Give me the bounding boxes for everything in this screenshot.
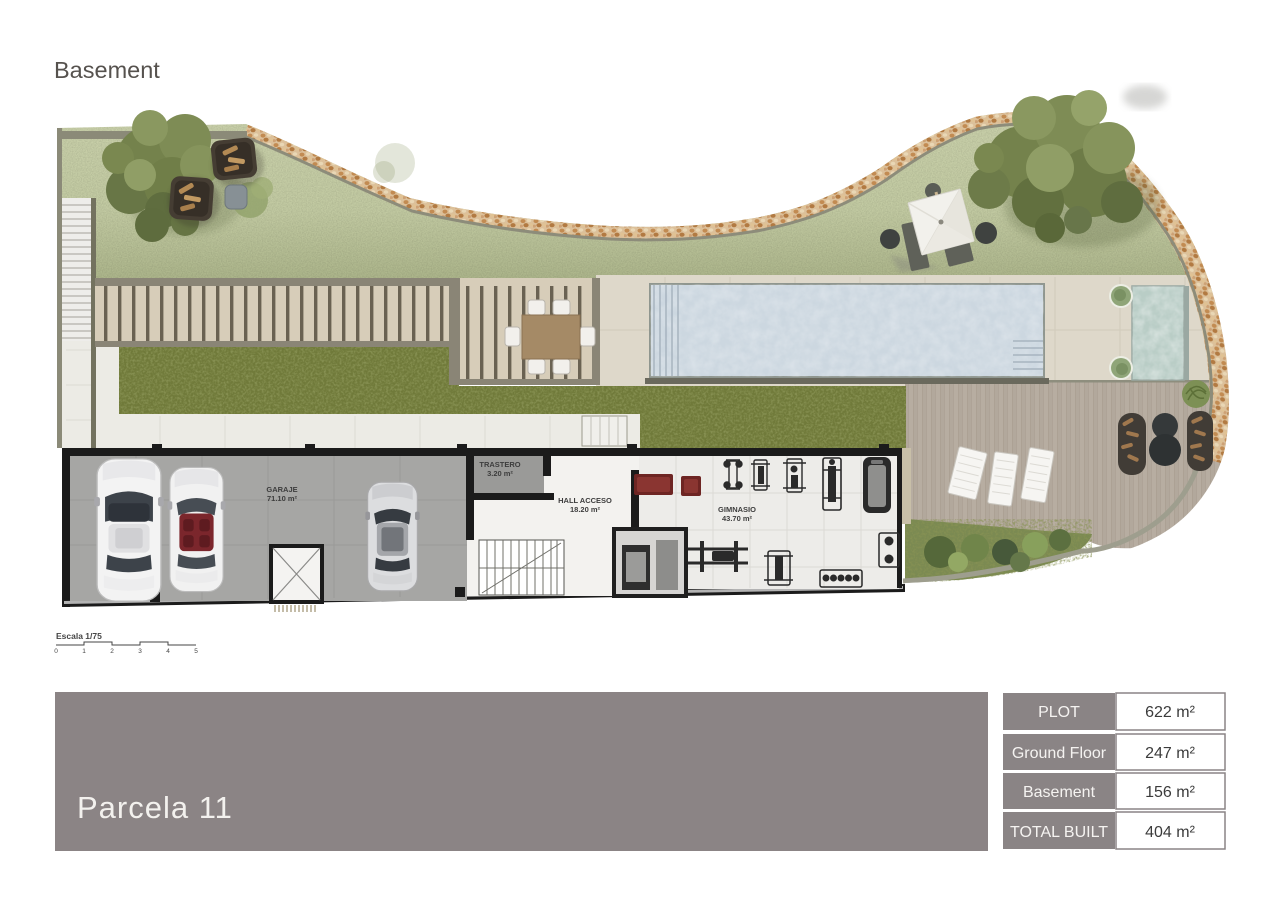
svg-text:Ground Floor: Ground Floor: [1012, 745, 1107, 762]
svg-text:71.10 m²: 71.10 m²: [267, 494, 298, 503]
svg-text:2: 2: [110, 648, 114, 655]
svg-text:43.70 m²: 43.70 m²: [722, 514, 753, 523]
svg-text:156 m²: 156 m²: [1145, 784, 1195, 801]
svg-text:404 m²: 404 m²: [1145, 824, 1195, 841]
svg-text:Basement: Basement: [1023, 784, 1096, 801]
svg-text:Escala 1/75: Escala 1/75: [56, 631, 102, 641]
svg-text:GARAJE: GARAJE: [266, 485, 297, 494]
svg-text:PLOT: PLOT: [1038, 704, 1080, 721]
svg-text:TRASTERO: TRASTERO: [479, 460, 520, 469]
svg-text:622 m²: 622 m²: [1145, 704, 1195, 721]
svg-text:5: 5: [194, 648, 198, 655]
svg-text:TOTAL BUILT: TOTAL BUILT: [1010, 824, 1108, 841]
svg-text:GIMNASIO: GIMNASIO: [718, 505, 756, 514]
svg-text:4: 4: [166, 648, 170, 655]
svg-text:Basement: Basement: [54, 57, 160, 83]
svg-text:3.20 m²: 3.20 m²: [487, 469, 513, 478]
svg-text:247 m²: 247 m²: [1145, 745, 1195, 762]
svg-text:HALL ACCESO: HALL ACCESO: [558, 496, 612, 505]
svg-text:18.20 m²: 18.20 m²: [570, 505, 601, 514]
svg-text:3: 3: [138, 648, 142, 655]
svg-text:Parcela 11: Parcela 11: [77, 790, 233, 825]
svg-text:0: 0: [54, 648, 58, 655]
svg-text:1: 1: [82, 648, 86, 655]
